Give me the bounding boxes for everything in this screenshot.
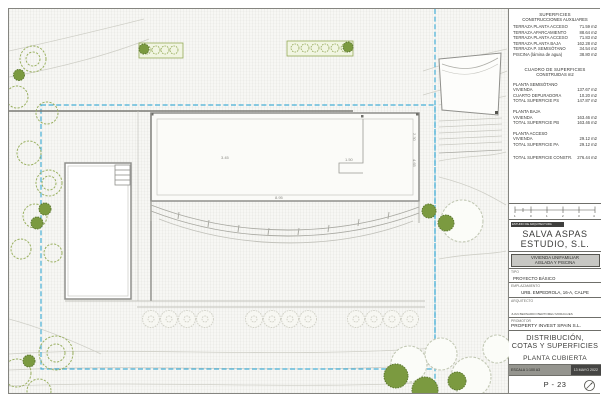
sheet-title-section: DISTRIBUCIÓN, COTAS Y SUPERFICIES PLANTA…: [509, 331, 601, 365]
swimming-pool: [65, 163, 131, 299]
svg-text:4.65: 4.65: [412, 159, 417, 168]
cuadro-subtitle: CONSTRUIDAS m2: [513, 72, 597, 77]
sheet-title: DISTRIBUCIÓN, COTAS Y SUPERFICIES: [512, 334, 598, 351]
cuadro-title: CUADRO DE SUPERFICIES: [513, 67, 597, 72]
svg-text:2.30: 2.30: [412, 133, 417, 142]
arquitecto-label: ARQUITECTO: [509, 298, 601, 303]
arquitecto-name: JUAN BERNARDO BERTOMEU MORAGUES: [511, 312, 573, 316]
driveway-ramp-lines: [439, 118, 502, 153]
table-row: PISCINA (lámina de agua)38.80 m2: [513, 52, 597, 58]
site-plan-area: 1.50 2.30 4.65 8.95 3.45: [9, 9, 509, 393]
project-name-section: VIVIENDA UNIFAMILIAR AISLADA Y PISCINA: [509, 252, 601, 269]
promotor-label: PROMOTOR: [509, 318, 601, 323]
firm-section: ESTUDIO DE ARQUITECTURA SALVA ASPAS ESTU…: [509, 220, 601, 252]
arquitecto-section: ARQUITECTO JUAN BERNARDO BERTOMEU MORAGU…: [509, 298, 601, 318]
promotor-value: PROPERTY INVEST SPAIN S.L.: [509, 324, 601, 329]
lower-terrace-edge: [65, 301, 425, 307]
svg-text:8.95: 8.95: [275, 195, 284, 200]
surface-tables-section: SUPERFICIES CONSTRUCCIONES AUXILIARES TE…: [509, 9, 601, 204]
svg-text:3: 3: [578, 214, 580, 218]
title-block: SUPERFICIES CONSTRUCCIONES AUXILIARES TE…: [509, 9, 601, 393]
emplazamiento-section: EMPLAZAMIENTO URB. EMPEDROLA, 16-A, CALP…: [509, 283, 601, 298]
escala-text: ESCALA 1:100 A3: [509, 368, 540, 372]
svg-text:2: 2: [562, 214, 564, 218]
canopy-pergola: [439, 53, 501, 115]
plant-circles-row: [143, 311, 419, 328]
table-row: TOTAL SUPERFICIE PB163.46 m2: [513, 120, 597, 126]
firm-name: SALVA ASPAS ESTUDIO, S.L.: [511, 229, 599, 249]
tipo-section: TIPO PROYECTO BÁSICO: [509, 269, 601, 283]
sheet-subtitle: PLANTA CUBIERTA: [523, 355, 587, 362]
site-plan-svg: 1.50 2.30 4.65 8.95 3.45: [9, 9, 509, 393]
fecha-text: 13 MAYO 2022: [571, 365, 601, 375]
table-row: TOTAL SUPERFICIE PS147.87 m2: [513, 98, 597, 104]
curved-terrace-steps: [151, 201, 419, 243]
project-name-box: VIVIENDA UNIFAMILIAR AISLADA Y PISCINA: [511, 254, 600, 267]
svg-text:1: 1: [514, 214, 516, 218]
promotor-section: PROMOTOR PROPERTY INVEST SPAIN S.L.: [509, 318, 601, 331]
house-roof: [138, 111, 419, 301]
svg-text:3.45: 3.45: [221, 155, 230, 160]
scale-date-bar: ESCALA 1:100 A3 13 MAYO 2022: [509, 365, 601, 376]
svg-text:4: 4: [593, 214, 595, 218]
pool-ladder: [115, 165, 130, 185]
total-row: TOTAL SUPERFICIE CONSTR.276.44 m2: [513, 155, 597, 161]
table-row: TOTAL SUPERFICIE PA29.12 m2: [513, 142, 597, 148]
drawing-sheet: 1.50 2.30 4.65 8.95 3.45: [0, 0, 604, 402]
sheet-number: P - 23: [544, 380, 567, 389]
north-arrow-icon: [583, 379, 596, 392]
emplazamiento-value: URB. EMPEDROLA, 16-A, CALPE: [509, 290, 601, 295]
sheet-number-section: P - 23: [509, 376, 601, 393]
tipo-value: PROYECTO BÁSICO: [509, 276, 601, 281]
tipo-label: TIPO: [509, 269, 601, 274]
sheet-frame: 1.50 2.30 4.65 8.95 3.45: [8, 8, 600, 394]
svg-text:1: 1: [546, 214, 548, 218]
superficies-subtitle: CONSTRUCCIONES AUXILIARES: [513, 17, 597, 22]
graphic-scale-bar: 1 0 1 2 3 4: [509, 204, 601, 220]
svg-text:1.50: 1.50: [345, 157, 354, 162]
firm-tag-bar: ESTUDIO DE ARQUITECTURA: [511, 222, 564, 227]
svg-text:0: 0: [530, 214, 532, 218]
hedge-planters: [139, 41, 353, 58]
emplazamiento-label: EMPLAZAMIENTO: [509, 283, 601, 288]
